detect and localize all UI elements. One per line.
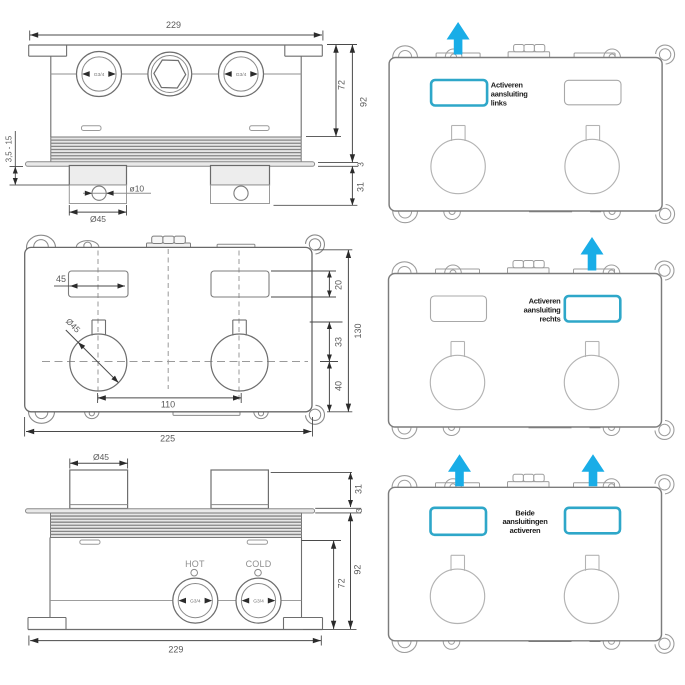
svg-text:40: 40 [334, 381, 344, 391]
svg-text:3,5 - 15: 3,5 - 15 [5, 135, 14, 162]
svg-text:COLD: COLD [246, 559, 272, 569]
svg-text:92: 92 [353, 565, 363, 575]
svg-text:HOT: HOT [185, 559, 205, 569]
svg-text:3: 3 [357, 162, 366, 167]
svg-text:aansluiting: aansluiting [491, 90, 529, 99]
svg-text:92: 92 [359, 97, 369, 107]
svg-text:rechts: rechts [539, 315, 560, 324]
svg-text:33: 33 [334, 337, 344, 347]
svg-text:31: 31 [356, 182, 366, 192]
svg-text:Beide: Beide [515, 508, 534, 517]
svg-text:45: 45 [56, 274, 66, 284]
svg-text:Ø45: Ø45 [90, 214, 106, 224]
svg-text:activeren: activeren [510, 526, 541, 535]
svg-text:Ø45: Ø45 [93, 452, 109, 462]
svg-text:72: 72 [337, 578, 347, 588]
svg-text:Activeren: Activeren [491, 80, 524, 89]
svg-text:G3/4: G3/4 [236, 72, 247, 78]
svg-text:G3/4: G3/4 [253, 598, 264, 604]
svg-text:aansluiting: aansluiting [524, 306, 562, 315]
svg-text:aansluitingen: aansluitingen [502, 517, 548, 526]
svg-text:20: 20 [334, 280, 344, 290]
svg-text:G3/4: G3/4 [190, 598, 201, 604]
svg-text:229: 229 [166, 20, 181, 30]
svg-text:3: 3 [355, 508, 364, 513]
svg-text:225: 225 [160, 434, 175, 444]
svg-text:31: 31 [354, 484, 364, 494]
svg-text:links: links [491, 99, 507, 108]
svg-text:ø10: ø10 [130, 183, 145, 193]
svg-text:110: 110 [161, 400, 175, 410]
svg-text:Activeren: Activeren [529, 296, 562, 305]
svg-text:229: 229 [168, 645, 183, 655]
svg-text:72: 72 [337, 80, 347, 90]
svg-text:130: 130 [353, 323, 363, 338]
svg-text:G3/4: G3/4 [94, 72, 105, 78]
